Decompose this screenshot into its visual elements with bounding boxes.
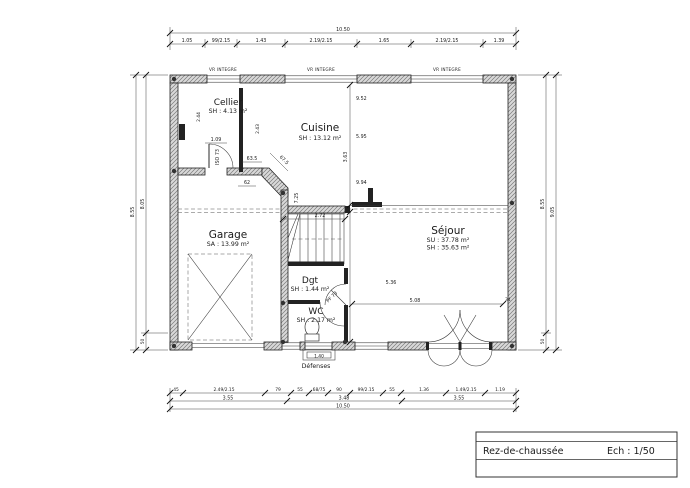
dim-b1-3: 55 [297, 387, 303, 393]
room-cellier-area: SH : 4.13 m² [209, 108, 248, 115]
dim-sejour-2: 5.08 [410, 298, 421, 304]
dim-b1-2: 79 [275, 387, 281, 393]
room-cellier-name: Cellier [214, 98, 243, 108]
room-sejour-area-sh: SH : 35.63 m² [427, 245, 470, 252]
interior-dimensions: 1.09 2.44 2.43 63.5 62 67.5 9.52 5.95 3.… [196, 82, 511, 360]
dim-b1-9: 1.49/2.15 [455, 387, 476, 393]
dim-cellier-h1: 2.44 [196, 112, 202, 122]
window-wc [282, 343, 300, 349]
dim-v1: 9.52 [356, 96, 367, 102]
room-cuisine-area: SH : 13.12 m² [299, 135, 342, 142]
dim-b1-8: 1.36 [419, 387, 429, 393]
room-garage-area: SA : 13.99 m² [207, 241, 250, 248]
label-defenses: Défenses [302, 362, 331, 370]
dim-top-1: 99/2.15 [212, 38, 230, 44]
dim-kitchen-3: 67.5 [278, 154, 290, 166]
dim-right-small: 50 [540, 339, 546, 345]
dim-top-4: 1.65 [379, 38, 390, 44]
radiator-icon [179, 124, 185, 140]
dim-bottom-total: 10.50 [336, 404, 350, 410]
vr-label-2: VR INTEGRE [307, 67, 335, 72]
dim-b1-7: 55 [389, 387, 395, 393]
window-entry-bay [305, 343, 332, 349]
dim-stair: 2.72 [315, 213, 326, 219]
dim-entry: 1.40 [314, 354, 324, 360]
french-door-sejour [426, 310, 492, 366]
dim-left-small: 50 [140, 339, 146, 345]
room-wc-area: SH : 2.17 m² [297, 317, 336, 324]
dim-kitchen-1: 63.5 [247, 156, 258, 162]
window-top-2 [285, 76, 357, 82]
vr-label-3: VR INTEGRE [433, 67, 461, 72]
dim-cellier-door: 1.09 [211, 137, 222, 143]
garage-door [192, 344, 264, 348]
window-top-3 [411, 76, 483, 82]
dim-v4: 9.94 [356, 180, 367, 186]
dim-b1-10: 1.19 [495, 387, 505, 393]
vr-integre-labels: VR INTEGRE VR INTEGRE VR INTEGRE [209, 67, 461, 72]
dim-b1-1: 2.49/2.15 [213, 387, 234, 393]
dim-top-total: 10.50 [336, 27, 350, 33]
room-dgt-name: Dgt [302, 276, 319, 286]
dim-sejour-1: 5.36 [386, 280, 397, 286]
dim-b1-0: 45 [173, 387, 179, 393]
label-iso: ISO 73 [215, 149, 221, 165]
room-dgt-area: SH : 1.44 m² [291, 286, 330, 293]
room-wc-name: WC [308, 307, 323, 317]
floorplan-drawing: 10.50 1.05 99/2.15 1.43 2.19/2.15 1.65 2… [0, 0, 690, 488]
dim-b2-2: 3.55 [454, 396, 465, 402]
door-cellier [209, 144, 233, 168]
dimension-chain-right: 8.55 50 9.05 [518, 72, 562, 353]
dim-v2: 5.95 [356, 134, 367, 140]
drawing-page: 10.50 1.05 99/2.15 1.43 2.19/2.15 1.65 2… [0, 0, 690, 488]
room-garage-name: Garage [209, 229, 247, 241]
dim-v3: 3.63 [343, 152, 349, 163]
vr-label-1: VR INTEGRE [209, 67, 237, 72]
dimension-chain-left: 8.55 8.05 50 [130, 72, 168, 353]
titleblock-scale: Ech : 1/50 [607, 446, 655, 457]
dim-right-inner: 8.55 [540, 199, 546, 210]
window-bottom-sejour [355, 343, 388, 349]
dim-kitchen-2: 62 [244, 180, 250, 186]
dim-sejour-3: 34 [505, 297, 511, 303]
dim-cellier-h2: 2.43 [255, 124, 261, 134]
window-top-1 [207, 76, 240, 82]
staircase [288, 214, 344, 266]
room-sejour-area-su: SU : 37.78 m² [427, 237, 470, 244]
dim-v5: 7.25 [294, 193, 300, 204]
room-sejour-name: Séjour [431, 225, 465, 237]
room-cuisine-name: Cuisine [301, 122, 339, 134]
dimension-chain-top: 10.50 1.05 99/2.15 1.43 2.19/2.15 1.65 2… [167, 27, 519, 50]
dim-b1-5: 90 [336, 387, 342, 393]
dim-top-5: 2.19/2.15 [436, 38, 459, 44]
titleblock-title: Rez-de-chaussée [483, 446, 564, 457]
dim-right-outer: 9.05 [550, 207, 556, 218]
dimension-chain-bottom: 45 2.49/2.15 79 55 68/75 90 99/2.15 55 1… [167, 387, 519, 412]
title-block: Rez-de-chaussée Ech : 1/50 [476, 432, 677, 477]
dim-b2-1: 3.48 [339, 396, 350, 402]
dim-left-inner: 8.05 [140, 199, 146, 210]
dim-b1-4: 68/75 [313, 387, 326, 393]
dim-top-3: 2.19/2.15 [310, 38, 333, 44]
dim-b2-0: 3.55 [223, 396, 234, 402]
dim-b1-6: 99/2.15 [358, 387, 375, 393]
dim-top-2: 1.43 [256, 38, 267, 44]
dim-top-0: 1.05 [182, 38, 193, 44]
dim-top-6: 1.39 [494, 38, 505, 44]
dim-left-outer: 8.55 [130, 207, 136, 218]
